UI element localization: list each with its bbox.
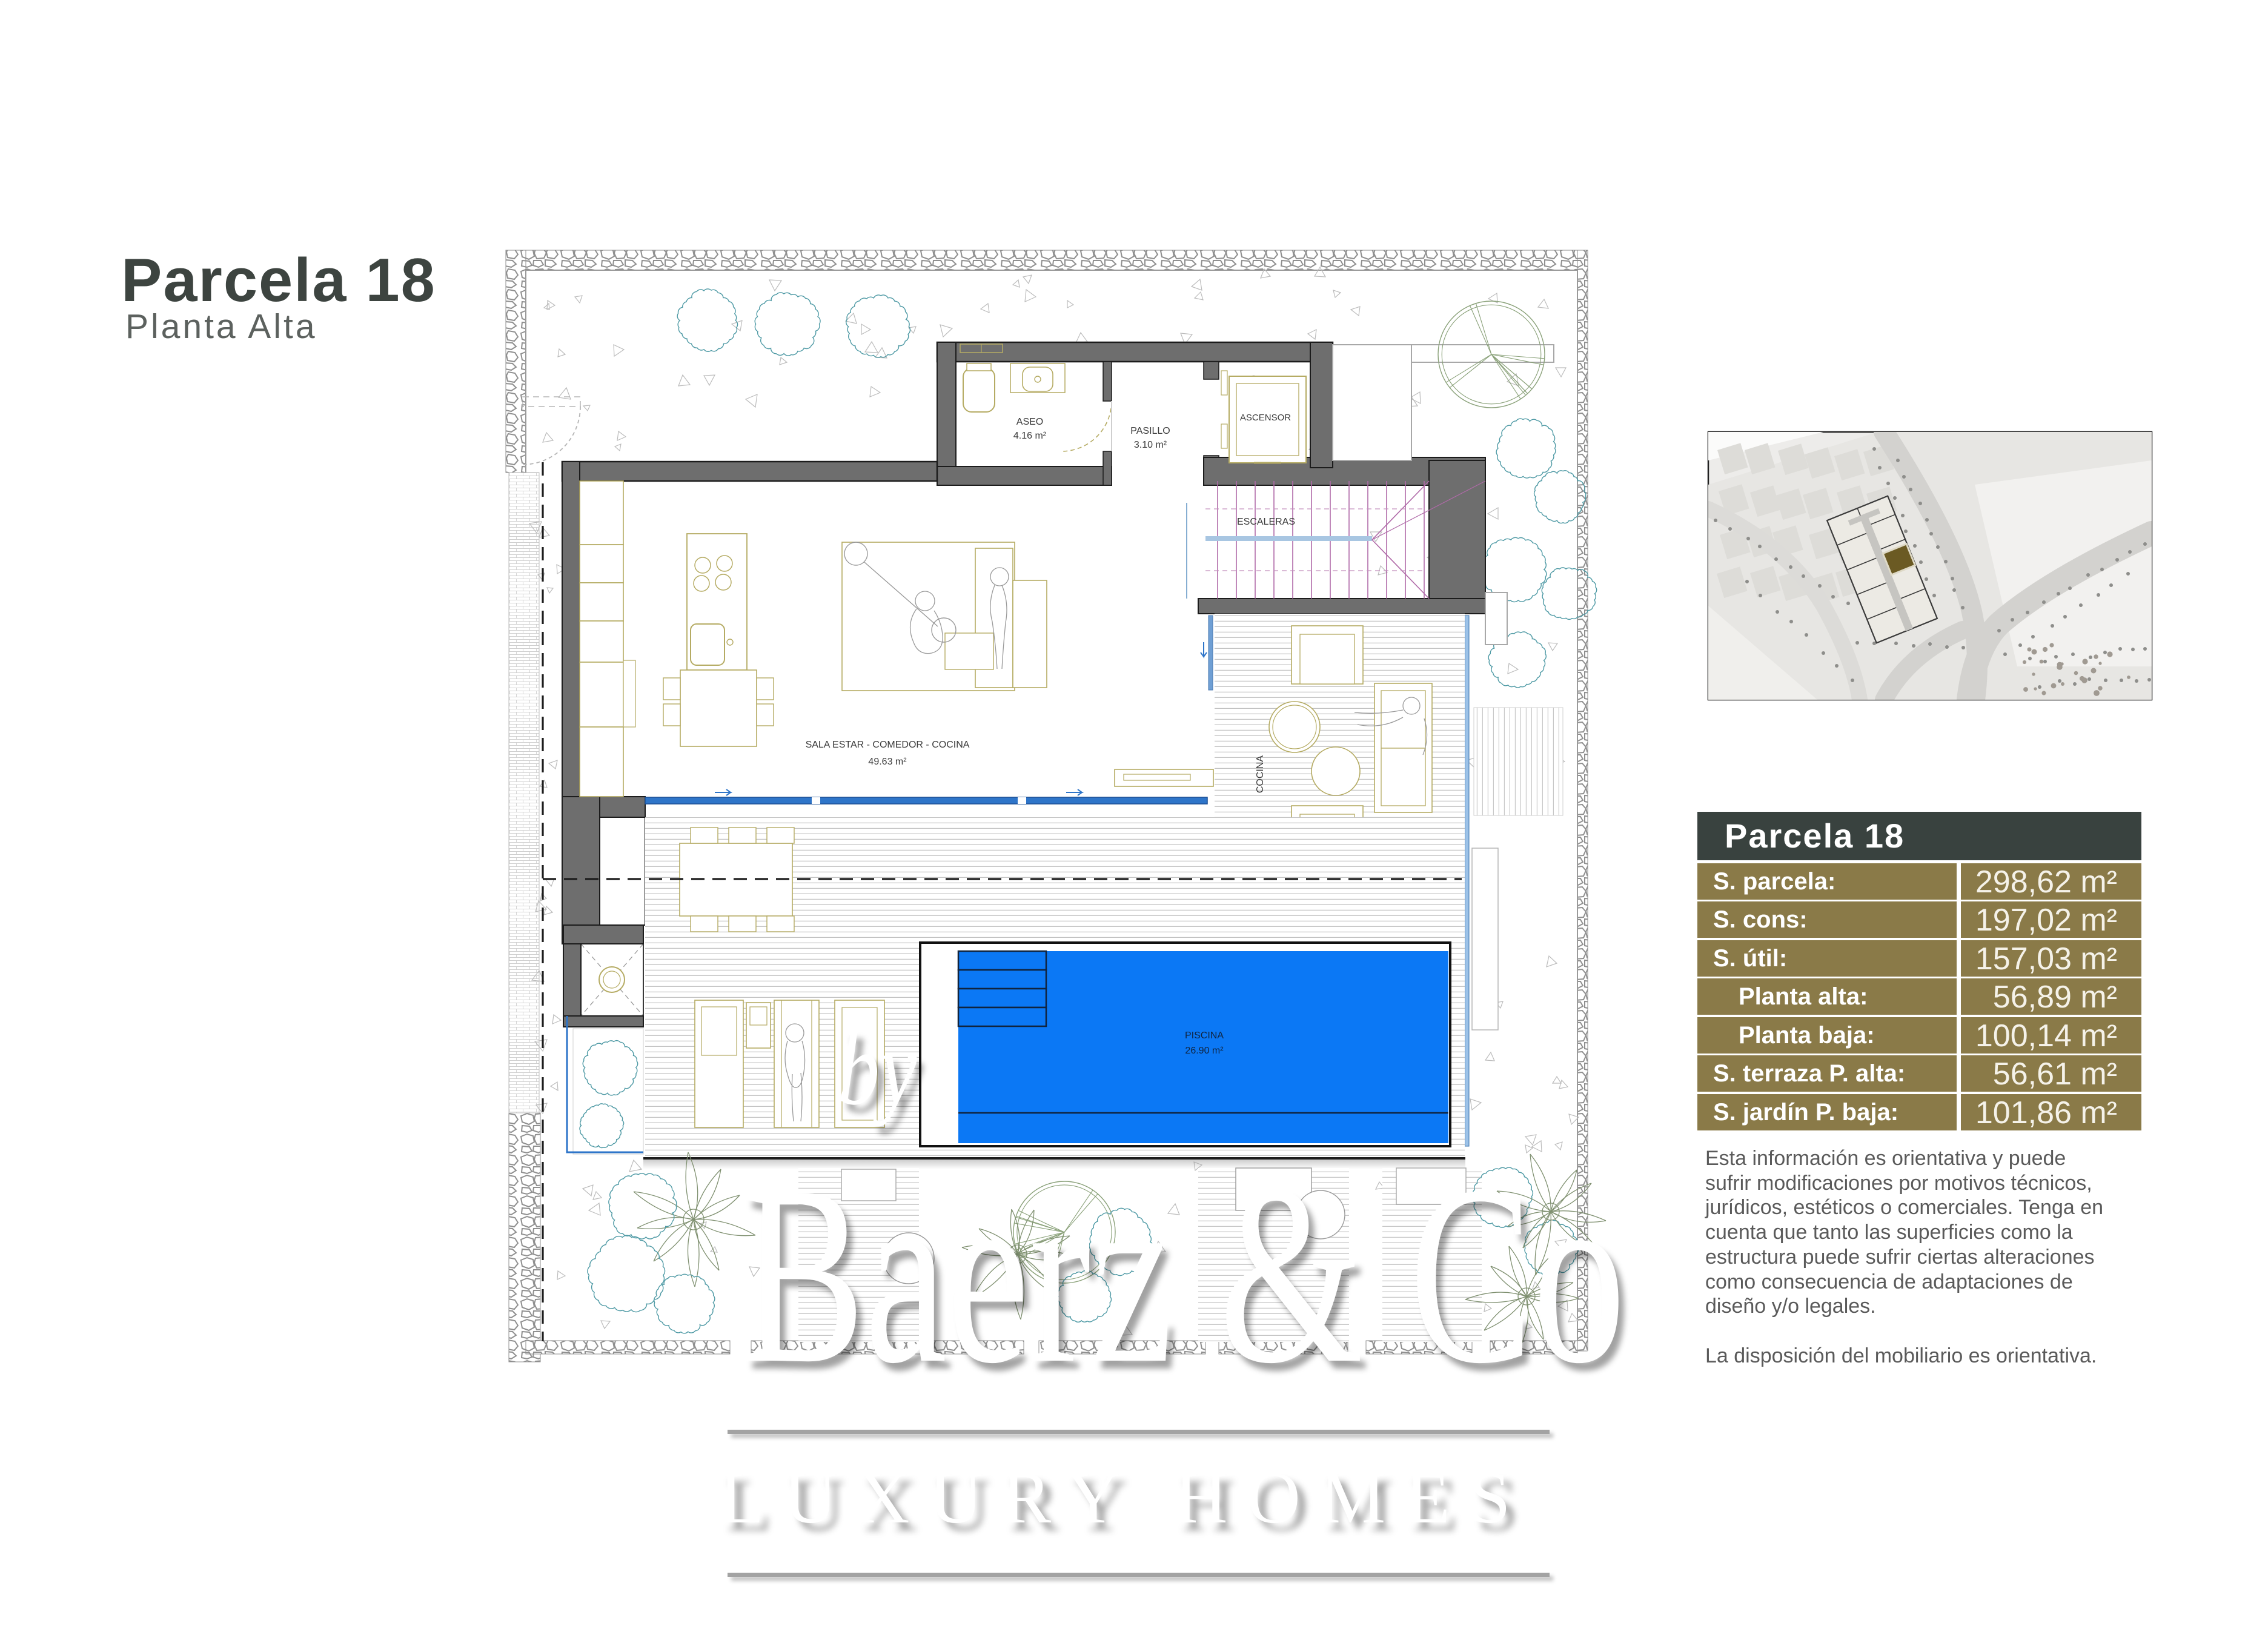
svg-text:COCINA: COCINA: [1255, 755, 1265, 794]
svg-text:3.10 m²: 3.10 m²: [1134, 440, 1167, 450]
svg-text:26.90 m²: 26.90 m²: [1185, 1046, 1224, 1056]
svg-text:SALA ESTAR - COMEDOR - COCINA: SALA ESTAR - COMEDOR - COCINA: [806, 740, 970, 750]
svg-text:4.16 m²: 4.16 m²: [1013, 431, 1047, 441]
svg-text:49.63 m²: 49.63 m²: [868, 757, 907, 767]
svg-text:ESCALERAS: ESCALERAS: [1237, 517, 1295, 527]
svg-text:PASILLO: PASILLO: [1130, 426, 1170, 436]
svg-text:ASCENSOR: ASCENSOR: [1240, 413, 1291, 423]
svg-text:ASEO: ASEO: [1016, 417, 1043, 427]
svg-text:PISCINA: PISCINA: [1185, 1030, 1224, 1041]
